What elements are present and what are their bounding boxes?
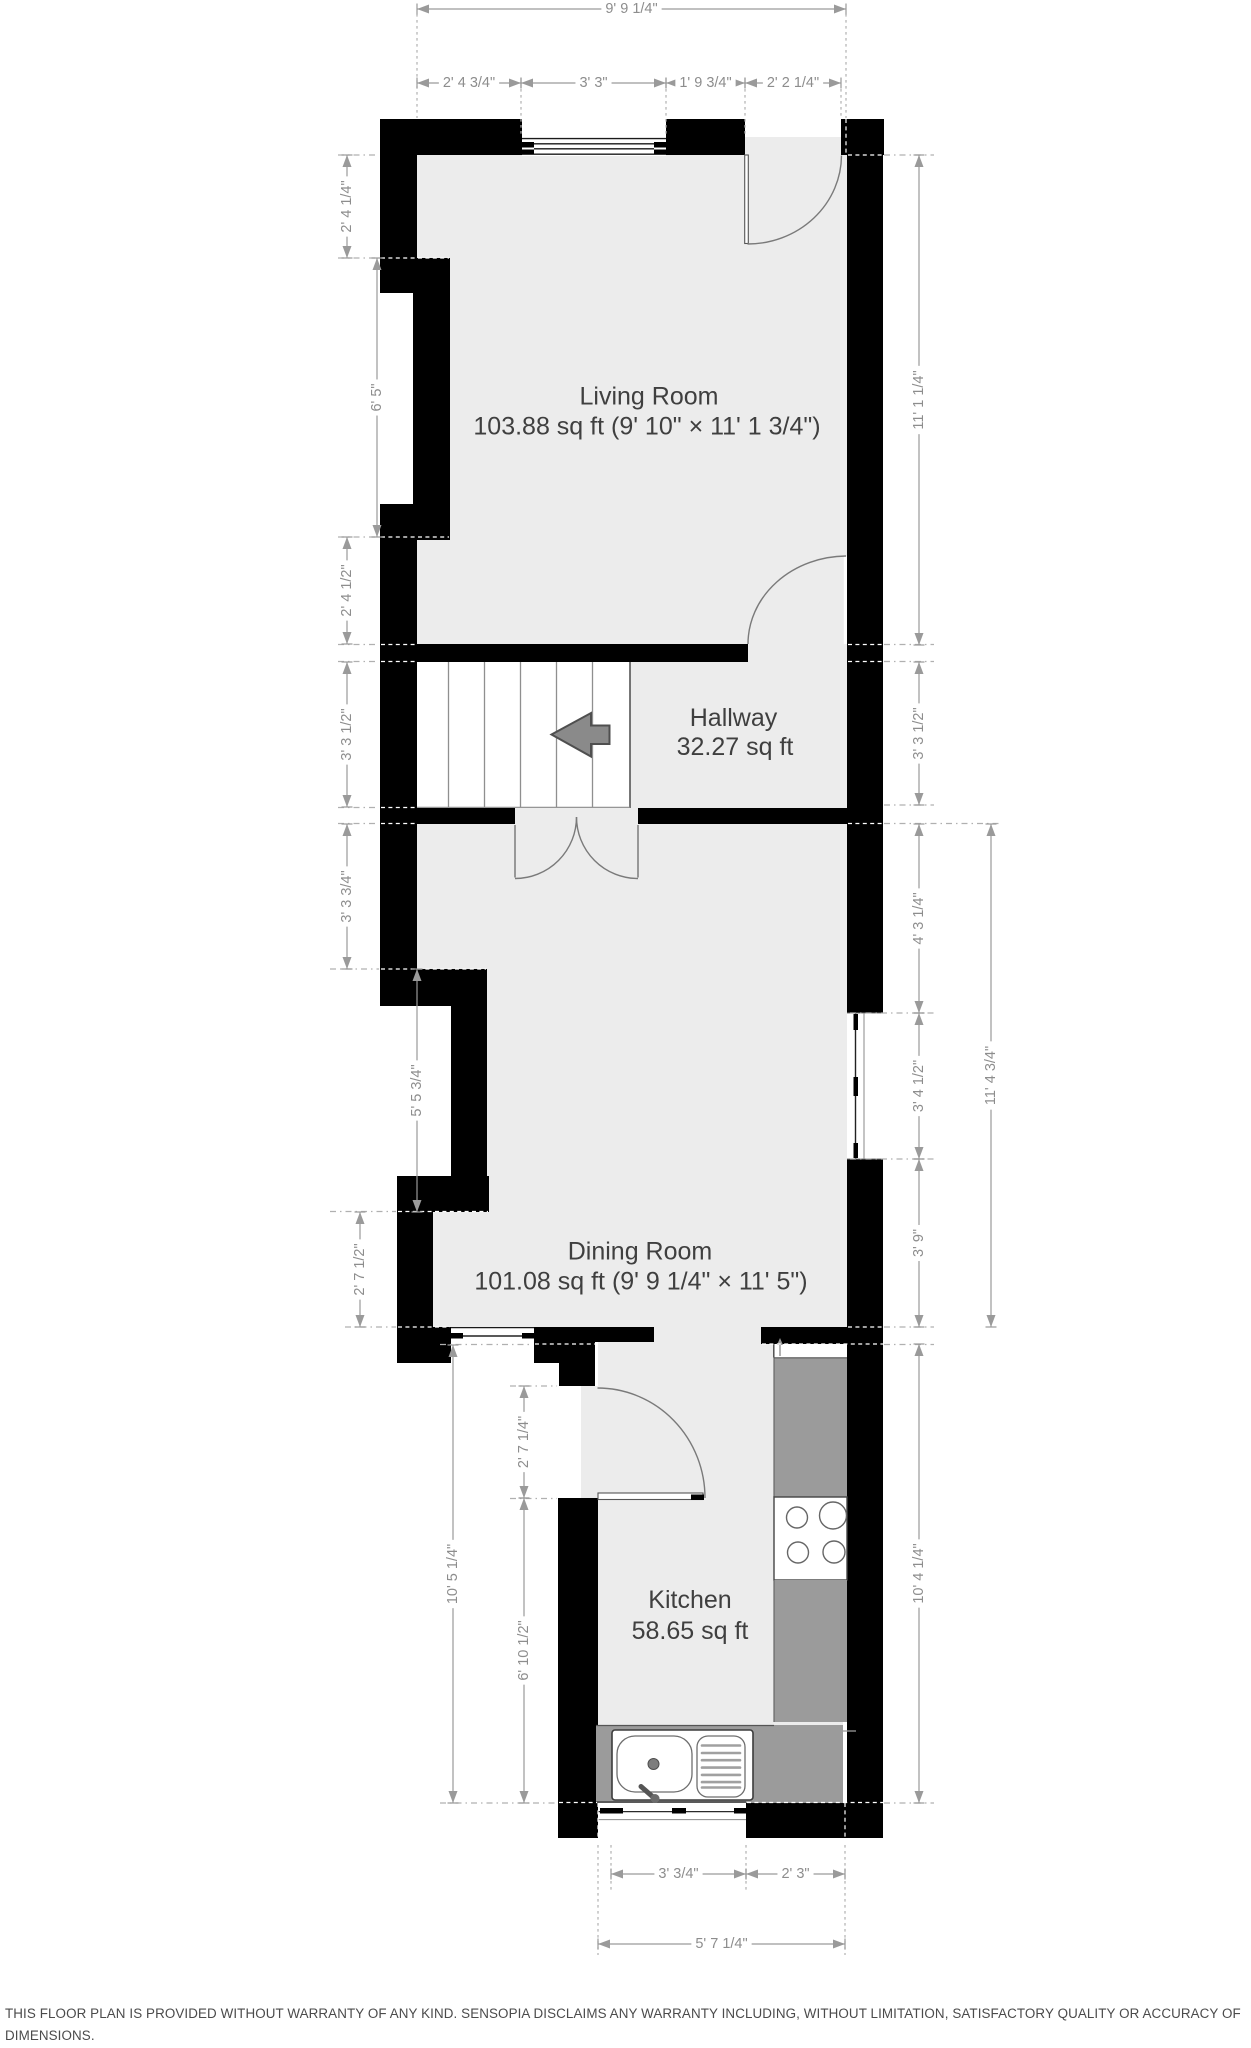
svg-text:2' 4 3/4": 2' 4 3/4" xyxy=(443,75,495,91)
svg-text:101.08 sq ft (9' 9 1/4" × 11': 101.08 sq ft (9' 9 1/4" × 11' 5") xyxy=(474,1268,807,1296)
svg-text:2' 7 1/2": 2' 7 1/2" xyxy=(352,1243,368,1295)
svg-text:2' 4 1/4": 2' 4 1/4" xyxy=(339,180,355,232)
svg-text:Dining Room: Dining Room xyxy=(568,1238,713,1266)
svg-text:10' 5 1/4": 10' 5 1/4" xyxy=(445,1544,461,1604)
svg-text:2' 3": 2' 3" xyxy=(781,1866,809,1882)
svg-text:4' 3 1/4": 4' 3 1/4" xyxy=(911,892,927,944)
svg-text:3' 9": 3' 9" xyxy=(911,1229,927,1257)
svg-text:Hallway: Hallway xyxy=(690,704,778,732)
svg-text:3' 4 1/2": 3' 4 1/2" xyxy=(911,1060,927,1112)
svg-text:THIS FLOOR PLAN IS PROVIDED WI: THIS FLOOR PLAN IS PROVIDED WITHOUT WARR… xyxy=(5,2006,1241,2021)
svg-text:5' 5 3/4": 5' 5 3/4" xyxy=(409,1064,425,1116)
svg-text:6' 10 1/2": 6' 10 1/2" xyxy=(516,1620,532,1680)
svg-text:103.88 sq ft (9' 10" × 11' 1 3: 103.88 sq ft (9' 10" × 11' 1 3/4") xyxy=(473,413,820,441)
svg-text:1' 9 3/4": 1' 9 3/4" xyxy=(679,75,731,91)
svg-text:DIMENSIONS.: DIMENSIONS. xyxy=(5,2028,95,2043)
svg-text:11' 4 3/4": 11' 4 3/4" xyxy=(983,1046,999,1105)
svg-text:3' 3 1/2": 3' 3 1/2" xyxy=(339,708,355,760)
svg-text:2' 4 1/2": 2' 4 1/2" xyxy=(339,564,355,616)
svg-text:2' 2 1/4": 2' 2 1/4" xyxy=(767,75,819,91)
svg-text:Kitchen: Kitchen xyxy=(648,1586,731,1614)
svg-text:32.27 sq ft: 32.27 sq ft xyxy=(677,733,794,761)
svg-text:58.65 sq ft: 58.65 sq ft xyxy=(632,1617,749,1645)
svg-text:9' 9 1/4": 9' 9 1/4" xyxy=(605,1,657,17)
svg-text:2' 7 1/4": 2' 7 1/4" xyxy=(516,1416,532,1468)
svg-text:10' 4 1/4": 10' 4 1/4" xyxy=(911,1543,927,1603)
svg-text:3' 3 3/4": 3' 3 3/4" xyxy=(339,870,355,922)
svg-text:3' 3/4": 3' 3/4" xyxy=(658,1866,698,1882)
svg-text:Living Room: Living Room xyxy=(580,383,719,411)
svg-text:6' 5": 6' 5" xyxy=(369,383,385,411)
svg-text:3' 3 1/2": 3' 3 1/2" xyxy=(911,707,927,759)
svg-text:11' 1 1/4": 11' 1 1/4" xyxy=(911,370,927,429)
svg-text:3' 3": 3' 3" xyxy=(579,75,607,91)
svg-text:5' 7 1/4": 5' 7 1/4" xyxy=(695,1936,747,1952)
